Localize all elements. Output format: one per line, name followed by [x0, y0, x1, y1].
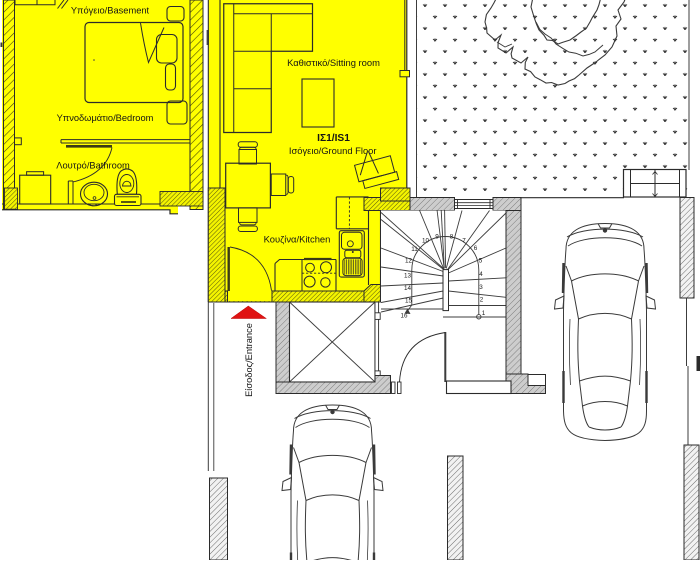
svg-text:10: 10 — [422, 238, 430, 245]
svg-text:11: 11 — [411, 246, 418, 253]
svg-text:5: 5 — [479, 258, 483, 265]
svg-text:9: 9 — [435, 234, 439, 241]
svg-text:1: 1 — [482, 310, 486, 317]
svg-text:2: 2 — [480, 297, 484, 304]
svg-text:Υπνοδωμάτιο/Bedroom: Υπνοδωμάτιο/Bedroom — [57, 113, 154, 123]
svg-text:14: 14 — [404, 285, 412, 292]
svg-text:Κουζίνα/Kitchen: Κουζίνα/Kitchen — [264, 234, 331, 245]
svg-text:8: 8 — [450, 234, 454, 241]
svg-text:16: 16 — [400, 313, 408, 320]
svg-text:6: 6 — [474, 245, 478, 252]
svg-text:Λουτρό/Bathroom: Λουτρό/Bathroom — [56, 161, 130, 171]
svg-text:13: 13 — [404, 273, 412, 280]
svg-text:15: 15 — [405, 298, 413, 305]
svg-text:Καθιστικό/Sitting room: Καθιστικό/Sitting room — [287, 57, 380, 68]
svg-text:Είσοδος/Entrance: Είσοδος/Entrance — [244, 323, 254, 397]
svg-text:7: 7 — [462, 238, 466, 245]
svg-text:12: 12 — [405, 258, 413, 265]
svg-text:Ισόγειο/Ground Floor: Ισόγειο/Ground Floor — [289, 145, 377, 156]
svg-text:4: 4 — [479, 271, 483, 278]
svg-text:Υπόγειο/Basement: Υπόγειο/Basement — [71, 5, 150, 15]
svg-text:3: 3 — [479, 284, 483, 291]
svg-text:ΙΣ1/IS1: ΙΣ1/IS1 — [317, 133, 350, 144]
